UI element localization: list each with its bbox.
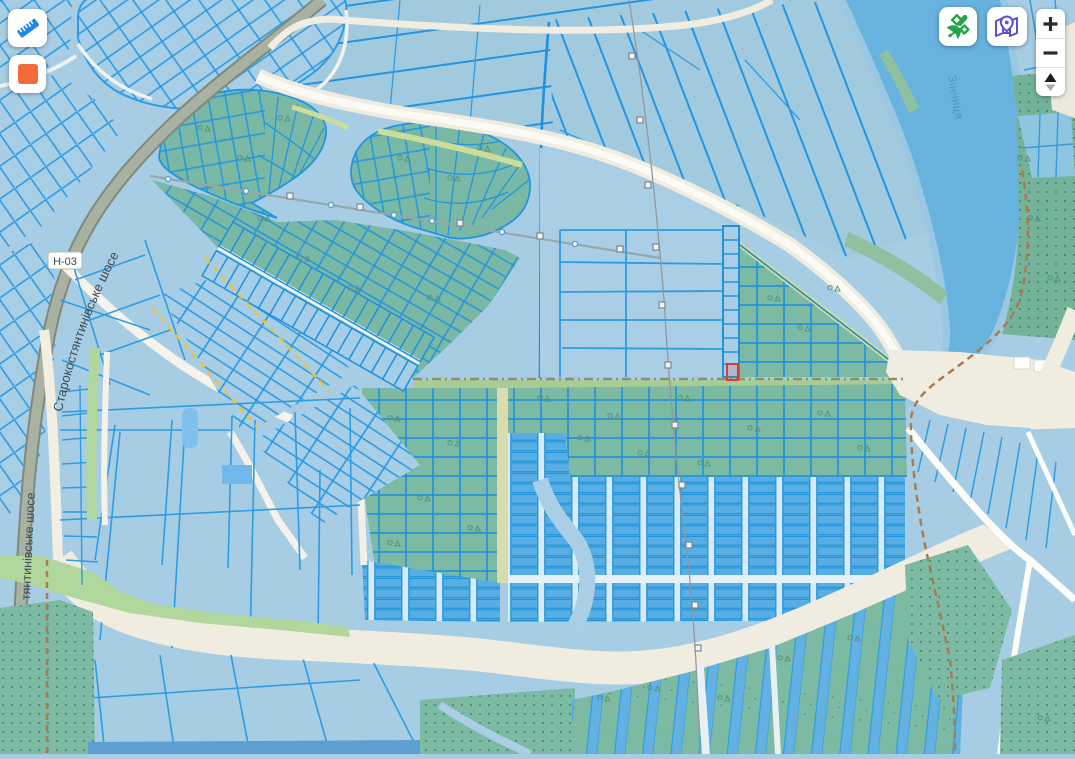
svg-text:Н-03: Н-03 — [53, 256, 77, 268]
